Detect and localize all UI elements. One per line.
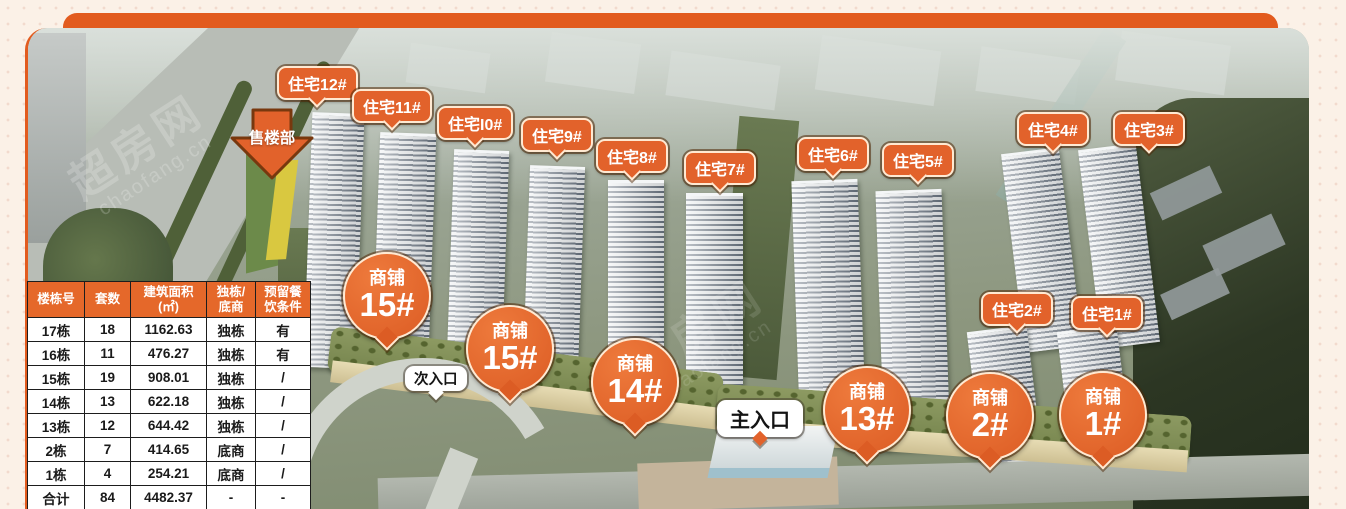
table-cell: 13: [85, 390, 131, 414]
table-cell: 独栋: [207, 366, 256, 390]
table-cell: 414.65: [131, 438, 207, 462]
table-header-row: 楼栋号套数建筑面积 (㎡)独栋/ 底商预留餐 饮条件: [28, 282, 311, 318]
shop-label-number: 15#: [359, 288, 414, 323]
table-cell: 4482.37: [131, 486, 207, 509]
building-data-table: 楼栋号套数建筑面积 (㎡)独栋/ 底商预留餐 饮条件 17栋181162.63独…: [27, 281, 311, 509]
table-cell: 84: [85, 486, 131, 509]
table-row: 2栋7414.65底商/: [28, 438, 311, 462]
table-cell: 2栋: [28, 438, 85, 462]
table-cell: 底商: [207, 462, 256, 486]
table-header-cell: 独栋/ 底商: [207, 282, 256, 318]
residence-label-2: 住宅2#: [981, 292, 1053, 326]
table-cell: 1栋: [28, 462, 85, 486]
overlay-stage: 售楼部 住宅12# 住宅11# 住宅I0# 住宅9# 住宅8# 住宅7# 住宅6…: [0, 0, 1346, 509]
table-cell: 独栋: [207, 342, 256, 366]
table-cell: 4: [85, 462, 131, 486]
residence-label-1: 住宅1#: [1071, 296, 1143, 330]
table-cell: 13栋: [28, 414, 85, 438]
table-cell: 独栋: [207, 390, 256, 414]
sales-office-label: 售楼部: [249, 126, 296, 148]
table-cell: /: [256, 414, 311, 438]
shop-label-15b: 商铺 15#: [466, 305, 554, 393]
residence-label-12: 住宅12#: [277, 66, 358, 100]
table-cell: 7: [85, 438, 131, 462]
table-cell: 622.18: [131, 390, 207, 414]
table-cell: 12: [85, 414, 131, 438]
table-cell: 有: [256, 342, 311, 366]
table-cell: 独栋: [207, 414, 256, 438]
table-cell: 19: [85, 366, 131, 390]
shop-label-number: 13#: [839, 402, 894, 437]
table-row: 14栋13622.18独栋/: [28, 390, 311, 414]
table-cell: 14栋: [28, 390, 85, 414]
table-cell: 有: [256, 318, 311, 342]
shop-label-14: 商铺 14#: [591, 338, 679, 426]
secondary-entrance-label: 次入口: [405, 366, 467, 391]
table-header-cell: 套数: [85, 282, 131, 318]
residence-label-3: 住宅3#: [1113, 112, 1185, 146]
shop-label-number: 15#: [482, 341, 537, 376]
shop-label-13: 商铺 13#: [823, 366, 911, 454]
shop-label-number: 14#: [607, 374, 662, 409]
table-header: 楼栋号套数建筑面积 (㎡)独栋/ 底商预留餐 饮条件: [28, 282, 311, 318]
residence-label-8: 住宅8#: [596, 139, 668, 173]
table-cell: -: [256, 486, 311, 509]
table-header-cell: 建筑面积 (㎡): [131, 282, 207, 318]
table-body: 17栋181162.63独栋有16栋11476.27独栋有15栋19908.01…: [28, 318, 311, 509]
main-entrance-label: 主入口: [717, 400, 803, 437]
table-cell: -: [207, 486, 256, 509]
table-cell: 18: [85, 318, 131, 342]
table-cell: 1162.63: [131, 318, 207, 342]
residence-label-11: 住宅11#: [352, 89, 432, 123]
table-cell: 独栋: [207, 318, 256, 342]
table-cell: 476.27: [131, 342, 207, 366]
shop-label-1: 商铺 1#: [1059, 371, 1147, 459]
table-row: 13栋12644.42独栋/: [28, 414, 311, 438]
table-cell: 11: [85, 342, 131, 366]
table-row: 16栋11476.27独栋有: [28, 342, 311, 366]
table-cell: /: [256, 366, 311, 390]
residence-label-6: 住宅6#: [797, 137, 869, 171]
table-cell: 合计: [28, 486, 85, 509]
residence-label-4: 住宅4#: [1017, 112, 1089, 146]
table-row: 15栋19908.01独栋/: [28, 366, 311, 390]
table-cell: 908.01: [131, 366, 207, 390]
table-cell: 17栋: [28, 318, 85, 342]
table-cell: 底商: [207, 438, 256, 462]
residence-label-9: 住宅9#: [521, 118, 593, 152]
table-row: 17栋181162.63独栋有: [28, 318, 311, 342]
table-cell: 254.21: [131, 462, 207, 486]
residence-label-7: 住宅7#: [684, 151, 756, 185]
shop-label-2: 商铺 2#: [946, 372, 1034, 460]
table-cell: /: [256, 390, 311, 414]
table-cell: /: [256, 438, 311, 462]
shop-label-15a: 商铺 15#: [343, 252, 431, 340]
table-header-cell: 楼栋号: [28, 282, 85, 318]
table-row: 1栋4254.21底商/: [28, 462, 311, 486]
table-cell: 16栋: [28, 342, 85, 366]
shop-label-number: 1#: [1085, 407, 1122, 442]
table: 楼栋号套数建筑面积 (㎡)独栋/ 底商预留餐 饮条件 17栋181162.63独…: [27, 281, 311, 509]
table-cell: 15栋: [28, 366, 85, 390]
table-cell: 644.42: [131, 414, 207, 438]
sales-office-arrow: 售楼部: [229, 107, 315, 181]
residence-label-10: 住宅I0#: [437, 106, 513, 140]
shop-label-number: 2#: [972, 408, 1009, 443]
table-row: 合计844482.37--: [28, 486, 311, 509]
table-cell: /: [256, 462, 311, 486]
residence-label-5: 住宅5#: [882, 143, 954, 177]
table-header-cell: 预留餐 饮条件: [256, 282, 311, 318]
